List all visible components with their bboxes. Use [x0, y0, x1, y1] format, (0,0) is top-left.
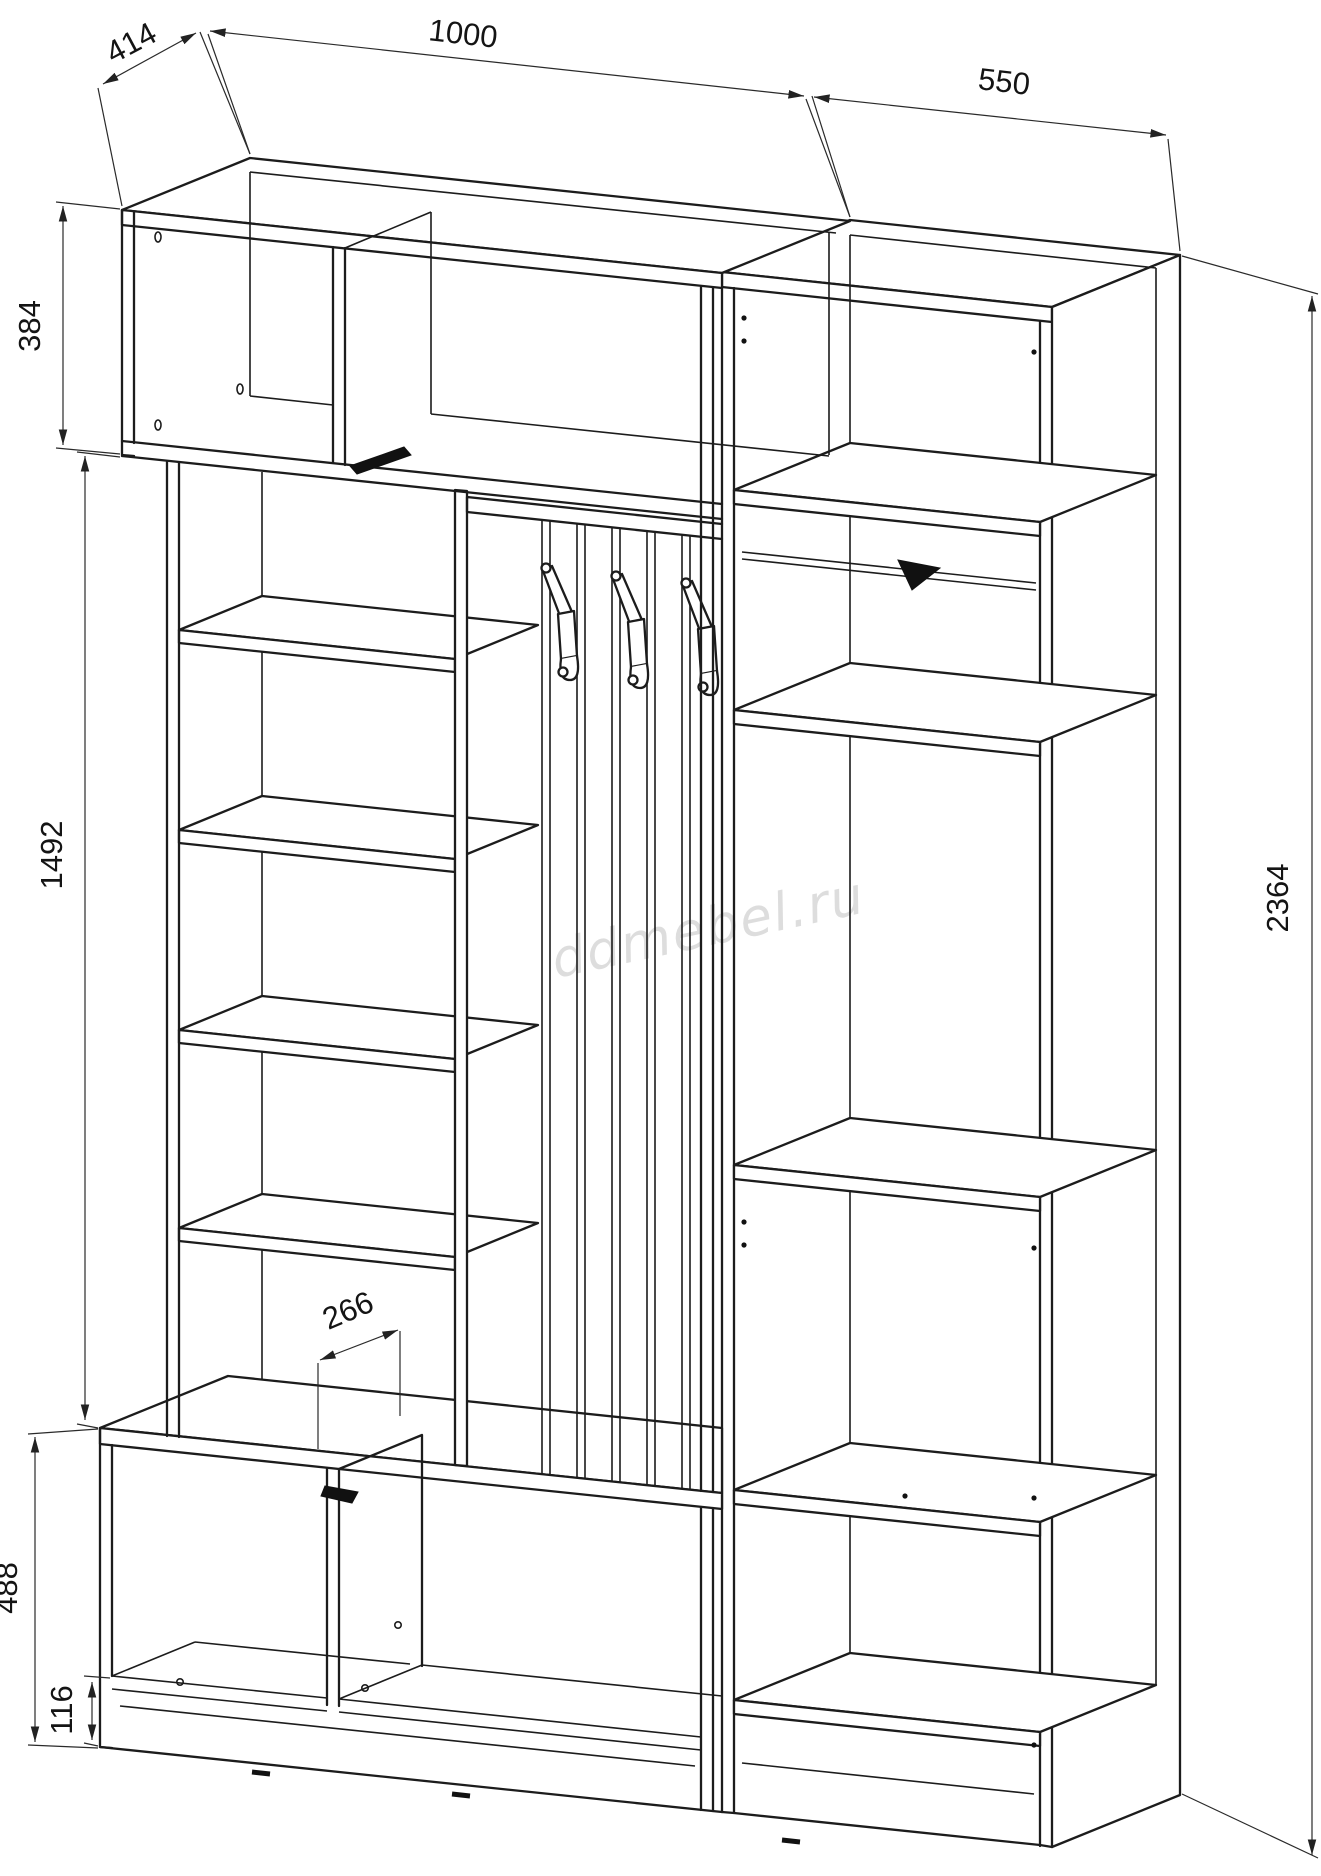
bench-section — [100, 1376, 722, 1812]
dimension-top-cabinet-height-384: 384 — [12, 202, 120, 454]
dim-label-open-middle-height: 1492 — [34, 821, 69, 890]
furniture-dimension-drawing: ddmebel.ru — [0, 0, 1321, 1876]
coat-hook-icon — [542, 564, 579, 681]
foot-mark — [782, 1840, 800, 1842]
dim-label-top-cabinet-height: 384 — [12, 300, 47, 352]
technical-drawing-page: ddmebel.ru — [0, 0, 1321, 1876]
screw-hole — [395, 1622, 401, 1628]
dim-label-total-height: 2364 — [1260, 864, 1295, 933]
clothes-rail — [742, 552, 1036, 590]
coat-hooks — [542, 564, 719, 696]
dim-label-top-width: 1000 — [427, 12, 499, 54]
dim-label-seat-depth: 266 — [317, 1284, 378, 1336]
screw-holes — [155, 232, 243, 430]
dim-label-bench-height: 488 — [0, 1562, 24, 1614]
coat-hook-icon — [612, 572, 649, 689]
rail-bracket — [898, 560, 940, 590]
dimension-total-height-2364: 2364 — [1182, 256, 1318, 1858]
dim-label-depth: 414 — [100, 15, 162, 70]
right-wardrobe-cabinet — [722, 220, 1180, 1847]
watermark-text: ddmebel.ru — [546, 866, 870, 991]
foot-marks — [252, 1772, 470, 1796]
dim-label-right-width: 550 — [977, 61, 1032, 102]
coat-hook-panel — [467, 497, 722, 1490]
dimension-open-middle-height-1492: 1492 — [34, 452, 120, 1428]
dim-label-base-height: 116 — [44, 1685, 79, 1734]
column-shelves — [179, 596, 538, 1270]
